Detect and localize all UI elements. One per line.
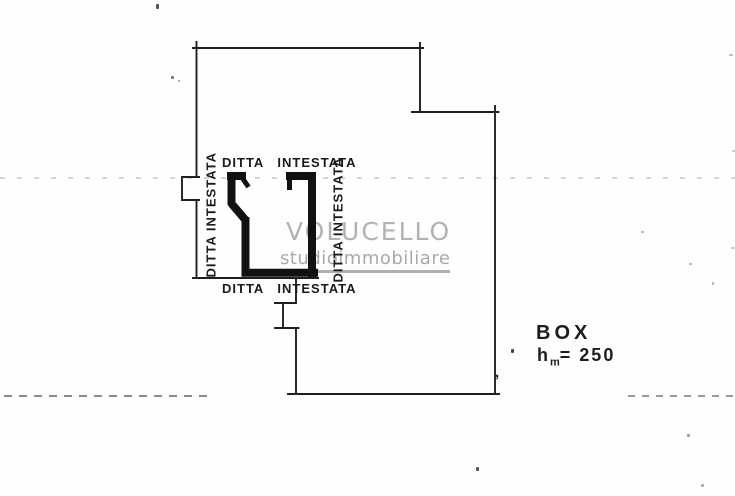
floorplan-drawing (0, 0, 735, 496)
box-height-annotation: hm= 250 (537, 345, 615, 369)
box-height-subscript: m (550, 357, 560, 369)
unit-wall-door-ticks (243, 179, 290, 190)
unit-wall-thick-path (227, 172, 318, 277)
label-ditta-intestata-right: DITTA INTESTATA (331, 167, 346, 283)
box-height-symbol: h (537, 345, 550, 365)
floorplan-scan-page: VOLUCELLO studioimmobiliare DITTA INTEST… (0, 0, 735, 496)
label-ditta-intestata-top: DITTA INTESTATA (222, 155, 346, 170)
scan-comma-mark: , (495, 364, 499, 381)
box-title: BOX (536, 322, 591, 345)
label-ditta-intestata-bottom: DITTA INTESTATA (222, 281, 346, 296)
box-height-value: = 250 (560, 345, 616, 365)
label-ditta-intestata-left: DITTA INTESTATA (204, 156, 219, 278)
